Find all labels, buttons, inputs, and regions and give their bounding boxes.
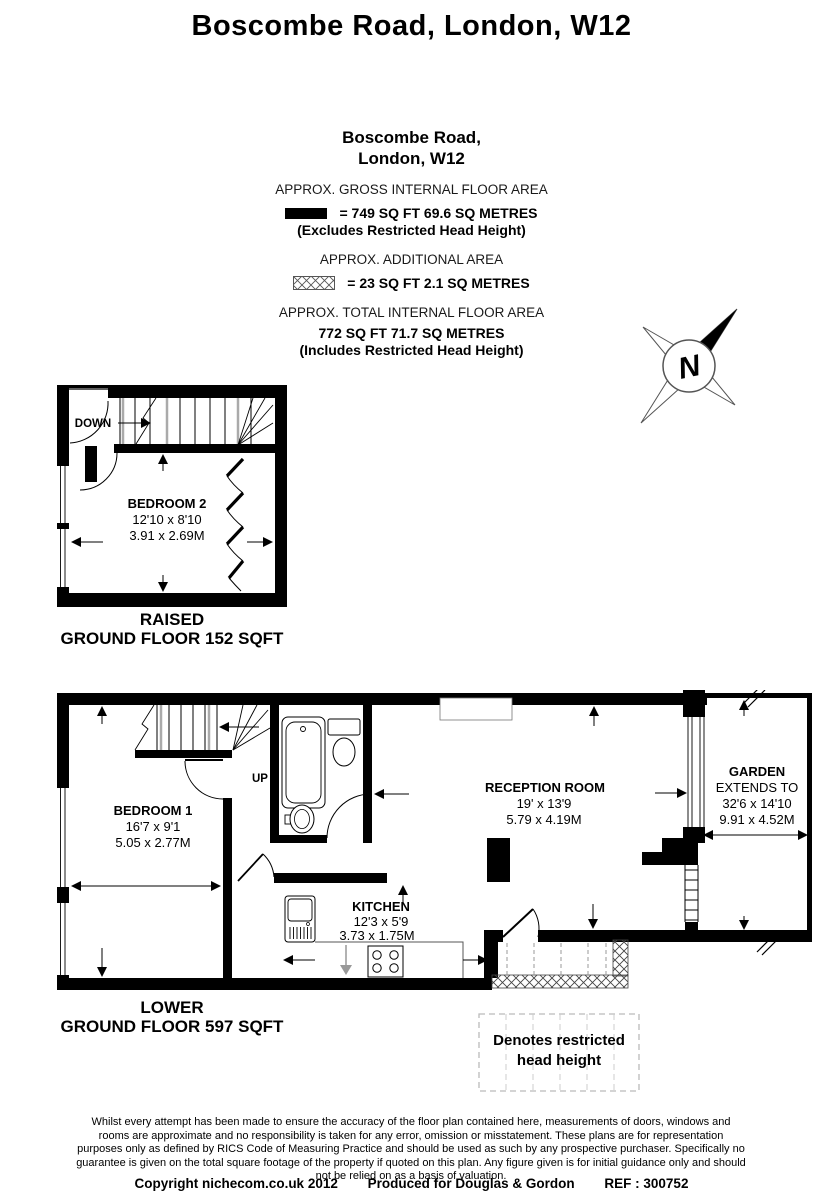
disclaimer-text: Whilst every attempt has been made to en… [76, 1116, 746, 1184]
additional-area-label: APPROX. ADDITIONAL AREA [0, 252, 823, 268]
restricted-head-height-area [492, 940, 628, 988]
kitchen-metric: 3.73 x 1.75M [339, 928, 414, 943]
garden-metric: 9.91 x 4.52M [719, 812, 794, 827]
garden-extends-label: EXTENDS TO [716, 780, 799, 795]
bedroom2-imperial: 12'10 x 8'10 [132, 512, 201, 527]
page-title: Boscombe Road, London, W12 [0, 10, 823, 43]
zigzag-wall [227, 459, 243, 591]
kitchen-sink [285, 896, 315, 942]
garden-name: GARDEN [729, 764, 785, 779]
cooker-hob [368, 946, 403, 977]
produced-for-text: Produced for Douglas & Gordon [368, 1176, 575, 1191]
gross-area-label: APPROX. GROSS INTERNAL FLOOR AREA [0, 182, 823, 198]
reception-metric: 5.79 x 4.19M [506, 812, 581, 827]
raised-ground-floor-plan: DOWN BEDROOM 2 12'10 x 8'10 3.91 x 2.69M [57, 385, 287, 607]
copyright-text: Copyright nichecom.co.uk 2012 [135, 1176, 338, 1191]
garden-steps [685, 865, 698, 922]
reception-name: RECEPTION ROOM [485, 780, 605, 795]
chimney-breast [487, 838, 510, 882]
gross-area-value: = 749 SQ FT 69.6 SQ METRES [339, 205, 537, 222]
bedroom2-metric: 3.91 x 2.69M [129, 528, 204, 543]
kitchen-imperial: 12'3 x 5'9 [354, 914, 409, 929]
garden-imperial: 32'6 x 14'10 [722, 796, 791, 811]
gross-area-note: (Excludes Restricted Head Height) [0, 222, 823, 239]
bedroom1-metric: 5.05 x 2.77M [115, 835, 190, 850]
copyright-line: Copyright nichecom.co.uk 2012 Produced f… [0, 1176, 823, 1191]
restricted-arrow [340, 945, 352, 975]
additional-area-hatch-swatch-icon [293, 276, 335, 290]
stairs-down-label: DOWN [75, 418, 111, 430]
lower-ground-floor-plan: UP [57, 690, 815, 992]
bedroom1-name: BEDROOM 1 [114, 803, 193, 818]
restricted-head-height-legend: Denotes restricted head height [478, 1013, 640, 1092]
kitchen-name: KITCHEN [352, 899, 410, 914]
bedroom2-name: BEDROOM 2 [128, 496, 207, 511]
gross-area-swatch-icon [285, 208, 327, 219]
stairs-up-label: UP [252, 773, 268, 785]
toilet [328, 719, 360, 766]
legend-line-2: head height [478, 1051, 640, 1071]
address-line-2: London, W12 [0, 149, 823, 170]
raised-floor-caption: RAISED GROUND FLOOR 152 SQFT [27, 611, 317, 648]
additional-area-value: = 23 SQ FT 2.1 SQ METRES [347, 275, 529, 292]
reception-imperial: 19' x 13'9 [517, 796, 572, 811]
lower-floor-caption: LOWER GROUND FLOOR 597 SQFT [27, 999, 317, 1036]
bathtub [282, 717, 325, 808]
bedroom1-imperial: 16'7 x 9'1 [126, 819, 181, 834]
legend-line-1: Denotes restricted [478, 1031, 640, 1051]
wash-basin [285, 805, 314, 833]
address-line-1: Boscombe Road, [0, 128, 823, 149]
compass-rose-icon: N [625, 300, 765, 432]
reference-number: REF : 300752 [604, 1176, 688, 1191]
